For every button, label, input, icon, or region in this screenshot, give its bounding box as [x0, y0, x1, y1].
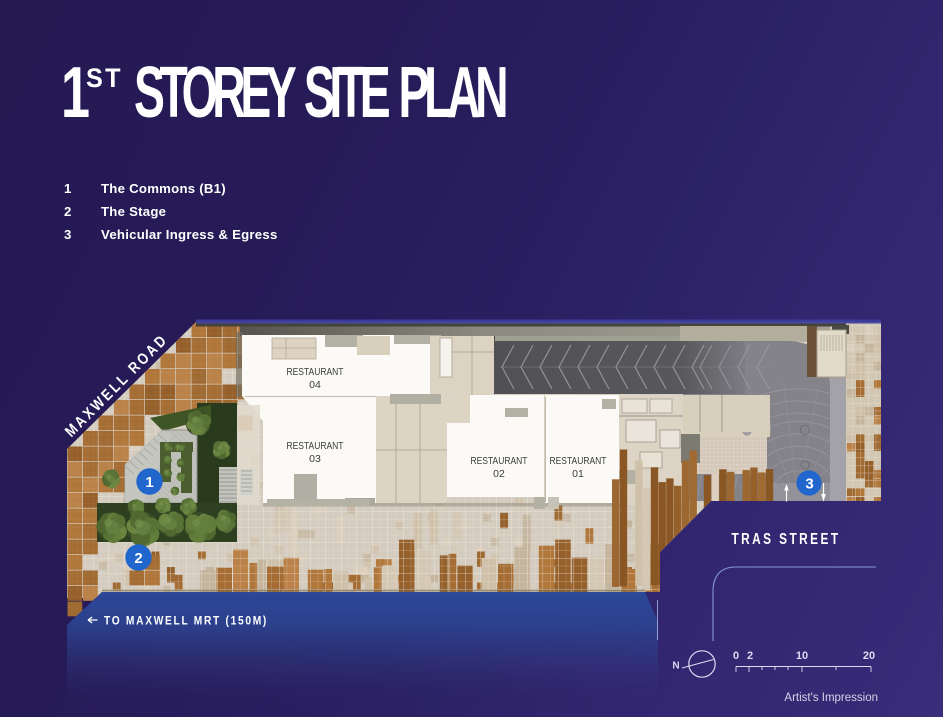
svg-text:TO MAXWELL MRT (150M): TO MAXWELL MRT (150M) — [104, 614, 268, 628]
svg-text:02: 02 — [493, 468, 505, 480]
svg-text:0: 0 — [733, 650, 739, 662]
svg-text:RESTAURANT: RESTAURANT — [287, 366, 344, 378]
svg-text:04: 04 — [309, 379, 321, 391]
svg-text:TRAS STREET: TRAS STREET — [732, 531, 841, 548]
svg-text:3: 3 — [805, 476, 813, 493]
svg-text:01: 01 — [572, 468, 584, 480]
svg-text:RESTAURANT: RESTAURANT — [287, 440, 344, 452]
svg-text:Artist's Impression: Artist's Impression — [784, 692, 878, 704]
svg-text:N: N — [672, 661, 679, 672]
svg-text:20: 20 — [863, 650, 875, 662]
svg-text:RESTAURANT: RESTAURANT — [471, 455, 528, 467]
svg-text:RESTAURANT: RESTAURANT — [550, 455, 607, 467]
svg-text:2: 2 — [134, 550, 142, 567]
svg-text:10: 10 — [796, 650, 808, 662]
svg-text:1: 1 — [145, 474, 153, 491]
svg-text:2: 2 — [747, 650, 753, 662]
svg-text:03: 03 — [309, 453, 321, 465]
